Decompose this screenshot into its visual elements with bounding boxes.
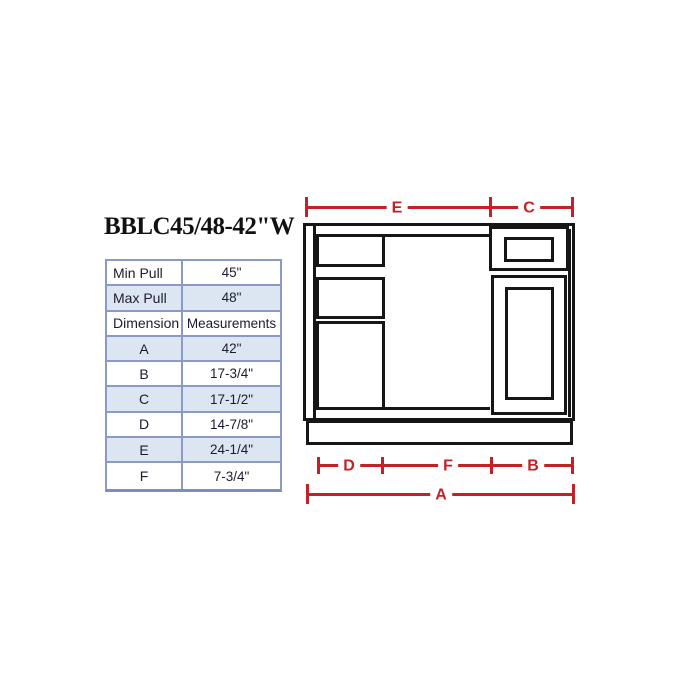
row-value: 42": [183, 337, 280, 360]
dimension-label-D: D: [338, 458, 360, 475]
dimension-label-F: F: [438, 458, 458, 475]
cabinet-spec-sheet: BBLC45/48-42"W Min Pull 45" Max Pull 48"…: [0, 0, 700, 700]
dimension-label-E: E: [387, 200, 408, 217]
table-row: F 7-3/4": [107, 463, 280, 488]
dimension-tick: [381, 457, 384, 474]
dimension-label-B: B: [522, 458, 544, 475]
row-value: 17-3/4": [183, 362, 280, 385]
dimension-tick: [489, 197, 492, 217]
row-label: Min Pull: [107, 261, 183, 284]
row-value: 7-3/4": [183, 463, 280, 488]
dimension-label-A: A: [430, 487, 452, 504]
dimension-tick: [306, 484, 309, 504]
column-header-dimension: Dimension: [107, 312, 183, 335]
row-label: F: [107, 463, 183, 488]
table-row: A 42": [107, 337, 280, 362]
blind-panel-top-drawer: [316, 234, 385, 267]
row-value: 24-1/4": [183, 438, 280, 461]
row-label: A: [107, 337, 183, 360]
row-label: B: [107, 362, 183, 385]
dimension-tick: [571, 457, 574, 474]
table-row: C 17-1/2": [107, 387, 280, 412]
blind-panel-door: [316, 321, 385, 410]
dimension-tick: [305, 197, 308, 217]
row-value: 14-7/8": [183, 413, 280, 436]
right-drawer-front-panel: [504, 237, 554, 262]
row-label: C: [107, 387, 183, 410]
blind-panel-middle-drawer: [316, 277, 385, 319]
row-label: E: [107, 438, 183, 461]
dimension-tick: [490, 457, 493, 474]
row-value: 45": [183, 261, 280, 284]
table-header-row: Dimension Measurements: [107, 312, 280, 337]
column-header-measurements: Measurements: [183, 312, 280, 335]
dimension-tick: [572, 484, 575, 504]
right-door-panel: [505, 287, 554, 400]
table-row: Min Pull 45": [107, 261, 280, 286]
dimension-tick: [317, 457, 320, 474]
row-value: 17-1/2": [183, 387, 280, 410]
row-label: Max Pull: [107, 286, 183, 309]
dimensions-table: Min Pull 45" Max Pull 48" Dimension Meas…: [105, 259, 282, 492]
dimension-tick: [571, 197, 574, 217]
toe-kick-outline: [306, 420, 573, 445]
table-row: E 24-1/4": [107, 438, 280, 463]
table-row: B 17-3/4": [107, 362, 280, 387]
table-row: D 14-7/8": [107, 413, 280, 438]
table-row: Max Pull 48": [107, 286, 280, 311]
product-code-title: BBLC45/48-42"W: [104, 213, 284, 241]
right-stile-line: [568, 229, 571, 417]
row-label: D: [107, 413, 183, 436]
dimension-label-C: C: [518, 200, 540, 217]
row-value: 48": [183, 286, 280, 309]
